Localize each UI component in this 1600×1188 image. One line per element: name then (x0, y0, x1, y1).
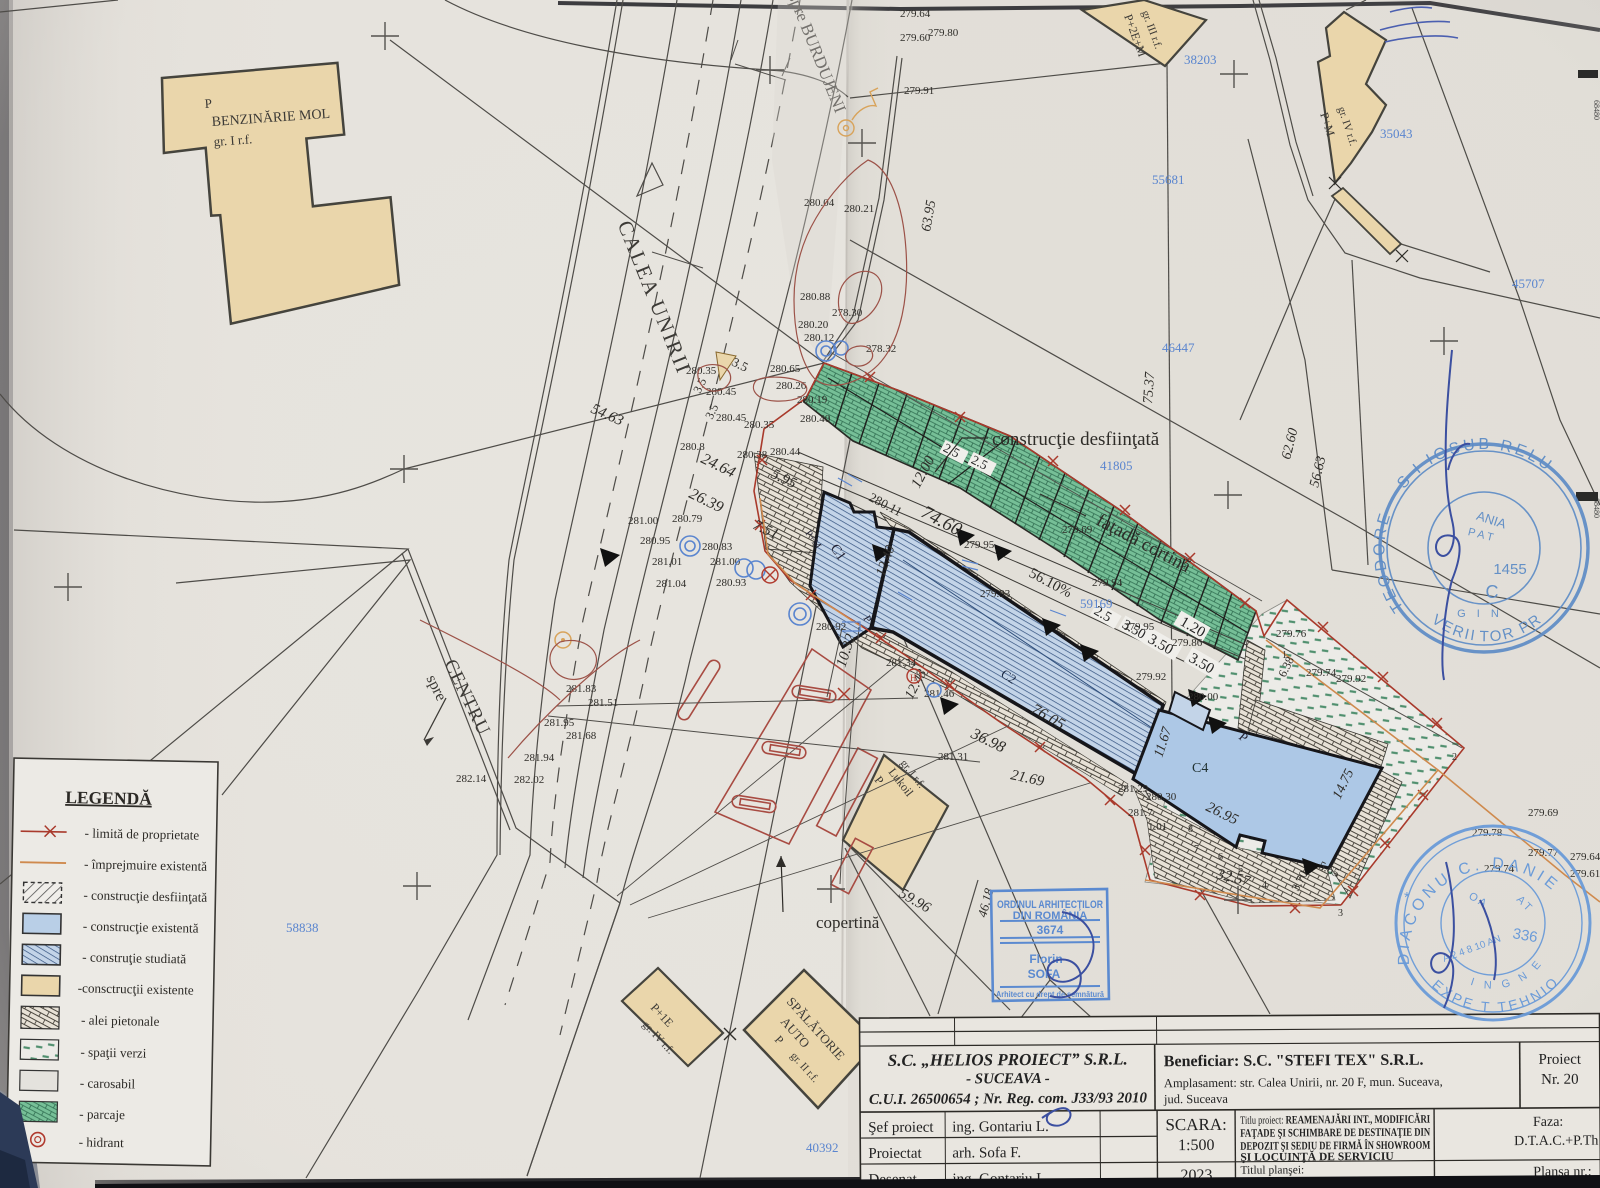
svg-text:- împrejmuire existentă: - împrejmuire existentă (84, 856, 207, 873)
svg-text:281.68: 281.68 (566, 730, 597, 742)
svg-text:S.C. „HELIOS PROIECT” S.R.L.: S.C. „HELIOS PROIECT” S.R.L. (888, 1049, 1128, 1069)
svg-text:Faza:: Faza: (1533, 1115, 1563, 1130)
svg-text:3: 3 (1338, 908, 1343, 919)
svg-text:- construţie studiată: - construţie studiată (82, 949, 186, 966)
svg-text:H: H (910, 673, 917, 683)
svg-text:41805: 41805 (1100, 458, 1133, 473)
svg-text:Şef proiect: Şef proiect (868, 1120, 934, 1136)
svg-text:jud. Suceava: jud. Suceava (1163, 1092, 1228, 1106)
svg-text:- hidrant: - hidrant (79, 1134, 125, 1150)
svg-text:3674: 3674 (1037, 923, 1064, 937)
svg-text:280.30: 280.30 (1146, 791, 1177, 803)
svg-text:ŞI LOCUINŢĂ DE SERVICIU: ŞI LOCUINŢĂ DE SERVICIU (1240, 1149, 1394, 1164)
svg-text:280.45: 280.45 (716, 412, 747, 424)
svg-text:G I N: G I N (1457, 608, 1503, 620)
svg-text:279.69: 279.69 (1528, 807, 1559, 819)
svg-text:75.37: 75.37 (1141, 371, 1158, 404)
svg-text:58838: 58838 (286, 920, 319, 935)
svg-text:280.83: 280.83 (702, 541, 733, 553)
svg-text:- carosabil: - carosabil (80, 1075, 136, 1091)
svg-text:281.34: 281.34 (886, 657, 917, 669)
svg-text:281.7: 281.7 (1128, 807, 1153, 819)
svg-text:280.95: 280.95 (640, 535, 671, 547)
svg-text:279.95: 279.95 (964, 539, 995, 551)
svg-text:1.01: 1.01 (1148, 821, 1167, 833)
svg-text:SOFA: SOFA (1028, 967, 1061, 981)
svg-text:281.95: 281.95 (544, 717, 575, 729)
svg-text:279.64: 279.64 (1570, 851, 1600, 863)
svg-text:279.64: 279.64 (900, 8, 931, 20)
svg-text:45707: 45707 (1512, 276, 1545, 291)
svg-text:280.45: 280.45 (706, 386, 737, 398)
svg-text:SCARA:: SCARA: (1165, 1115, 1227, 1134)
svg-text:copertină: copertină (816, 913, 880, 932)
svg-text:- parcaje: - parcaje (79, 1106, 125, 1122)
svg-text:278.30: 278.30 (832, 307, 863, 319)
svg-text:280.21: 280.21 (844, 203, 874, 215)
svg-text:279.95: 279.95 (1124, 621, 1155, 633)
svg-text:- alei pietonale: - alei pietonale (81, 1012, 160, 1029)
svg-text:281.31: 281.31 (938, 751, 968, 763)
svg-text:279.93: 279.93 (980, 588, 1011, 600)
svg-text:D.T.A.C.+P.Th: D.T.A.C.+P.Th (1514, 1134, 1598, 1150)
svg-text:280.44: 280.44 (770, 446, 801, 458)
svg-text:Proiect: Proiect (1538, 1052, 1581, 1068)
svg-text:281.04: 281.04 (656, 578, 687, 590)
svg-text:2: 2 (1452, 752, 1457, 763)
svg-text:5: 5 (1238, 864, 1243, 875)
svg-text:68480: 68480 (1592, 100, 1600, 120)
svg-text:279.76: 279.76 (1276, 628, 1307, 640)
svg-text:Titlu proiect: REAMENAJĂRI INT: Titlu proiect: REAMENAJĂRI INT., MODIFIC… (1240, 1112, 1430, 1127)
svg-text:55681: 55681 (1152, 172, 1185, 187)
svg-text:P: P (204, 96, 212, 111)
svg-text:gr. I r.f.: gr. I r.f. (213, 131, 253, 149)
svg-text:280.92: 280.92 (816, 621, 846, 633)
svg-text:280.38: 280.38 (737, 449, 768, 461)
svg-text:280.93: 280.93 (716, 577, 747, 589)
svg-text:281.94: 281.94 (524, 752, 555, 764)
svg-text:- construcţie desfiinţată: - construcţie desfiinţată (83, 887, 207, 904)
svg-text:C.U.I. 26500654 ; Nr. Reg. com: C.U.I. 26500654 ; Nr. Reg. com. J33/93 2… (869, 1090, 1148, 1108)
svg-text:C: C (1486, 582, 1499, 602)
svg-text:280.65: 280.65 (770, 363, 801, 375)
svg-text:DIN ROMÂNIA: DIN ROMÂNIA (1013, 909, 1088, 922)
svg-text:279.86: 279.86 (1172, 637, 1203, 649)
svg-text:281.01: 281.01 (652, 556, 682, 568)
svg-text:1:500: 1:500 (1178, 1137, 1215, 1154)
svg-text:*: * (1404, 889, 1410, 906)
svg-text:281.00: 281.00 (628, 515, 659, 527)
svg-text:arh. Sofa F.: arh. Sofa F. (952, 1145, 1021, 1161)
svg-text:Amplasament: str. Calea Unirii: Amplasament: str. Calea Unirii, nr. 20 F… (1164, 1075, 1443, 1091)
svg-text:279.92: 279.92 (1136, 671, 1166, 683)
svg-text:FAŢADE ŞI SCHIMBARE DE DESTINA: FAŢADE ŞI SCHIMBARE DE DESTINAŢIE DIN (1240, 1127, 1431, 1140)
svg-text:281.00: 281.00 (710, 556, 741, 568)
svg-text:1: 1 (1282, 650, 1287, 661)
svg-text:279.69: 279.69 (1062, 524, 1093, 536)
svg-text:Arhitect cu drept de semnătură: Arhitect cu drept de semnătură (996, 989, 1104, 999)
svg-text:280.04: 280.04 (804, 197, 835, 209)
svg-text:280.40: 280.40 (800, 413, 831, 425)
svg-text:1455: 1455 (1493, 561, 1526, 578)
svg-text:-consctrucţii existente: -consctrucţii existente (78, 980, 194, 997)
svg-text:8: 8 (1188, 824, 1193, 835)
svg-text:4: 4 (1262, 880, 1267, 891)
svg-text:281.29: 281.29 (1118, 783, 1149, 795)
svg-text:279.60: 279.60 (900, 32, 931, 44)
svg-text:Nr. 20: Nr. 20 (1541, 1072, 1579, 1088)
svg-text:6: 6 (1218, 852, 1223, 863)
svg-text:construcţie desfiinţată: construcţie desfiinţată (992, 429, 1160, 450)
svg-text:Titlul planşei:: Titlul planşei: (1240, 1164, 1304, 1176)
svg-text:38203: 38203 (1184, 52, 1217, 67)
svg-text:- spaţii verzi: - spaţii verzi (80, 1044, 147, 1060)
svg-text:279.94: 279.94 (1092, 577, 1123, 589)
svg-text:35043: 35043 (1380, 126, 1413, 141)
svg-text:- limită de proprietate: - limită de proprietate (84, 825, 199, 842)
svg-text:279.91: 279.91 (904, 85, 934, 97)
svg-text:279.80: 279.80 (928, 27, 959, 39)
svg-text:- SUCEAVA -: - SUCEAVA - (966, 1071, 1050, 1088)
svg-text:280.20: 280.20 (798, 319, 829, 331)
svg-text:282.02: 282.02 (514, 774, 544, 786)
svg-text:280.35: 280.35 (744, 419, 775, 431)
svg-text:- construcţie existentă: - construcţie existentă (83, 918, 199, 935)
svg-text:Beneficiar: S.C. "STEFI TEX" S: Beneficiar: S.C. "STEFI TEX" S.R.L. (1164, 1052, 1424, 1071)
svg-text:282.14: 282.14 (456, 773, 487, 785)
svg-text:280.00: 280.00 (1188, 691, 1219, 703)
svg-text:7: 7 (1194, 844, 1199, 855)
svg-text:280.88: 280.88 (800, 291, 831, 303)
svg-text:280.79: 280.79 (672, 513, 703, 525)
svg-text:281.51: 281.51 (588, 697, 618, 709)
svg-text:279.92: 279.92 (1336, 673, 1366, 685)
svg-text:Florin: Florin (1029, 952, 1062, 966)
svg-text:59169: 59169 (1080, 596, 1113, 611)
svg-text:40392: 40392 (806, 1140, 839, 1155)
svg-text:46447: 46447 (1162, 340, 1195, 355)
svg-text:279.74: 279.74 (1306, 667, 1337, 679)
svg-text:ing. Gontariu L.: ing. Gontariu L. (952, 1119, 1049, 1136)
svg-text:Proiectat: Proiectat (868, 1146, 922, 1162)
svg-text:280.8: 280.8 (680, 441, 705, 453)
svg-text:LEGENDĂ: LEGENDĂ (65, 787, 152, 809)
svg-text:C4: C4 (1192, 761, 1208, 776)
